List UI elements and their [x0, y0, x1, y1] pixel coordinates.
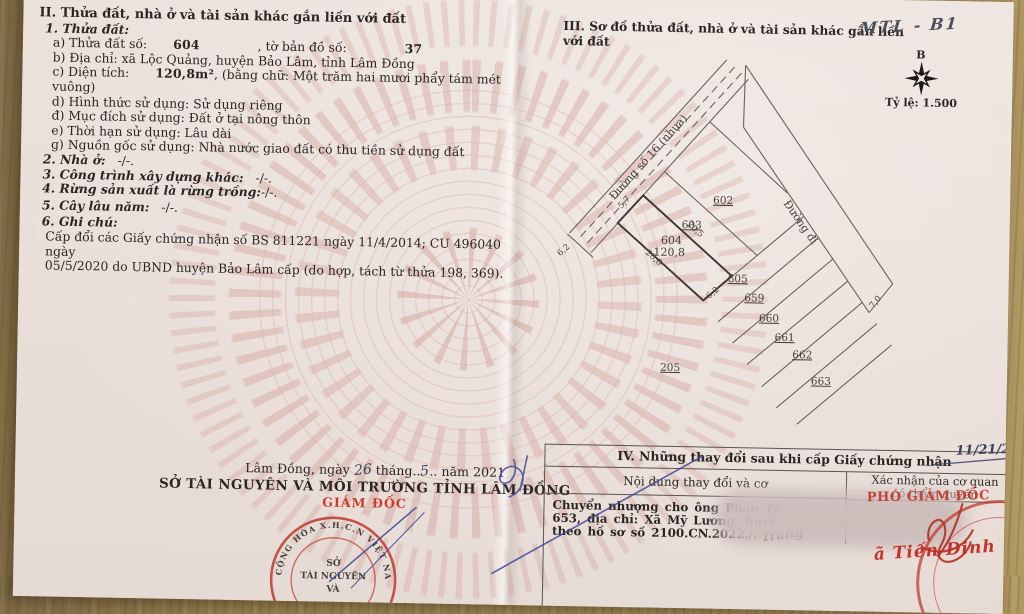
director-signature: [499, 459, 523, 497]
director-signature-stroke: [520, 455, 528, 491]
photo-of-land-certificate: { "colors": {"stamp_red": "#bf3a2e", "ha…: [0, 0, 1024, 576]
certificate-paper: II. Thửa đất, nhà ở và tài sản khác gắn …: [13, 0, 1014, 614]
stamp-crossing-stroke-2: [351, 511, 424, 589]
signature-flourish-line: [491, 452, 703, 578]
handwritten-underline: [933, 456, 1013, 467]
ink-signatures-overlay: [13, 0, 1014, 614]
stamp-crossing-stroke-1: [329, 506, 416, 584]
